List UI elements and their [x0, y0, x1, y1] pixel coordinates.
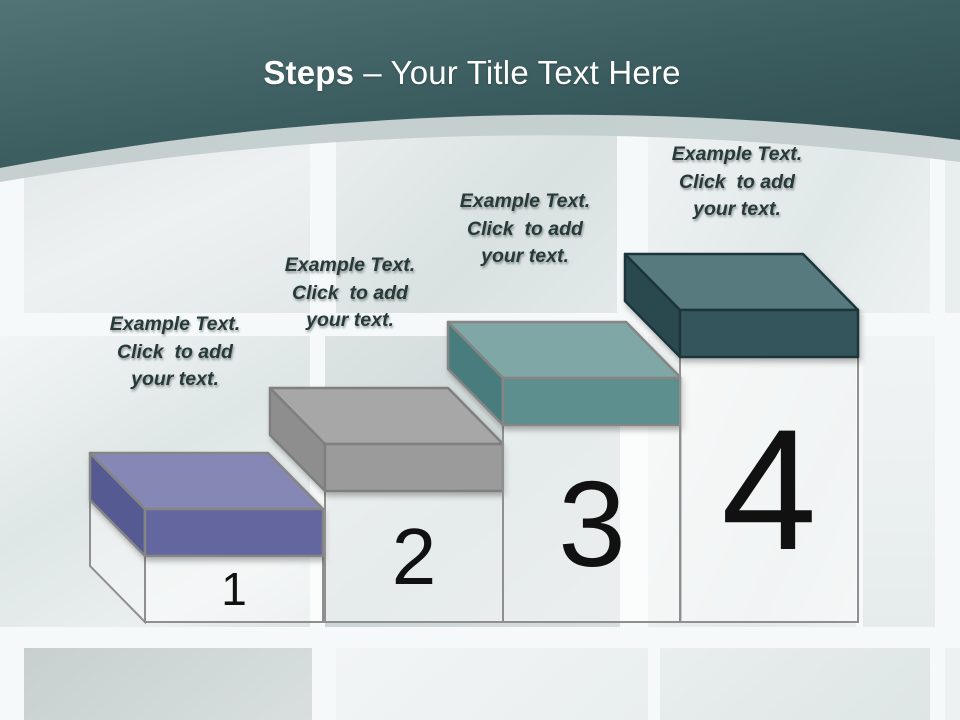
step-2-lid: [270, 388, 503, 491]
step-2-label[interactable]: Example Text. Click to add your text.: [250, 252, 450, 335]
step-1-label[interactable]: Example Text. Click to add your text.: [75, 311, 275, 394]
header-banner: [0, 0, 960, 200]
step-3-number[interactable]: 3: [503, 425, 681, 622]
step-1-lid-front: [145, 509, 323, 556]
step-2-number[interactable]: 2: [325, 491, 503, 622]
step-3-lid-front: [503, 378, 681, 425]
step-1-number[interactable]: 1: [145, 556, 323, 622]
step-4-lid-front: [680, 310, 858, 357]
title-rest-text: – Your Title Text Here: [363, 54, 680, 91]
step-4-lid: [625, 254, 858, 357]
slide-canvas: 1 2 3 4 Example Text. Click to add your …: [0, 0, 960, 720]
step-3-lid: [448, 322, 681, 425]
step-2-lid-front: [325, 444, 503, 491]
step-3-label[interactable]: Example Text. Click to add your text.: [425, 188, 625, 271]
title-bold-text: Steps: [263, 54, 354, 91]
slide-title[interactable]: Steps– Your Title Text Here: [0, 53, 944, 93]
step-4-number[interactable]: 4: [680, 357, 858, 622]
